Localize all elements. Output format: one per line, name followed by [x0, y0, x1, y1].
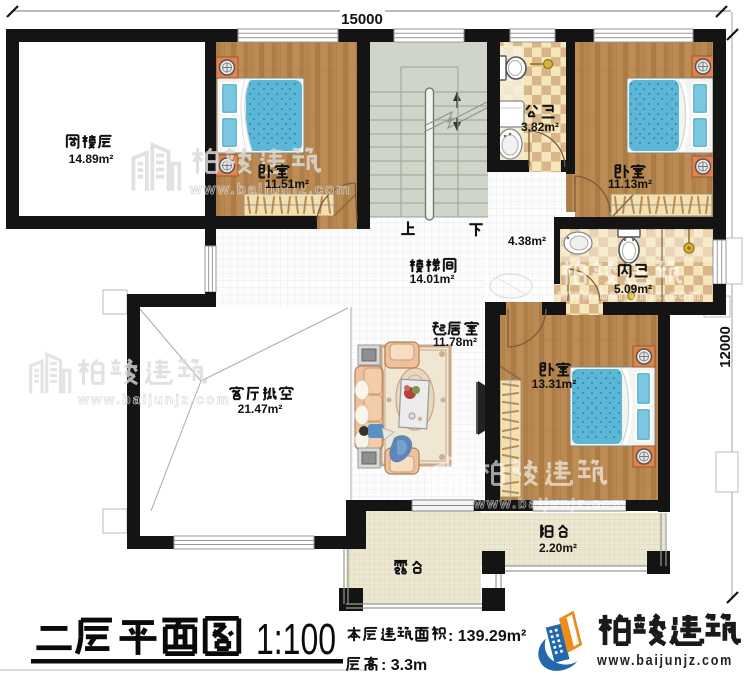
svg-text:: 139.29m²: : 139.29m²: [448, 628, 526, 645]
svg-text:5.09m²: 5.09m²: [614, 282, 652, 296]
svg-text:www.baijunjz.com: www.baijunjz.com: [473, 495, 627, 511]
svg-text:3.82m²: 3.82m²: [521, 120, 559, 134]
svg-text:4.38m²: 4.38m²: [508, 234, 546, 248]
svg-text:21.47m²: 21.47m²: [238, 402, 283, 416]
svg-text:14.01m²: 14.01m²: [410, 272, 455, 286]
svg-text:13.31m²: 13.31m²: [532, 377, 577, 391]
svg-text:: 3.3m: : 3.3m: [381, 657, 427, 674]
svg-text:2.20m²: 2.20m²: [539, 541, 577, 555]
svg-text:11.51m²: 11.51m²: [265, 177, 309, 191]
svg-text:15000: 15000: [341, 11, 383, 28]
svg-text:12000: 12000: [717, 326, 734, 368]
svg-text:14.89m²: 14.89m²: [69, 152, 114, 166]
svg-text:11.13m²: 11.13m²: [608, 177, 652, 191]
svg-text:www.baijunjz.com: www.baijunjz.com: [596, 653, 733, 669]
svg-text:11.78m²: 11.78m²: [433, 335, 477, 349]
svg-text:www.baijunjz.com: www.baijunjz.com: [77, 391, 231, 407]
svg-text:1:100: 1:100: [256, 615, 336, 664]
